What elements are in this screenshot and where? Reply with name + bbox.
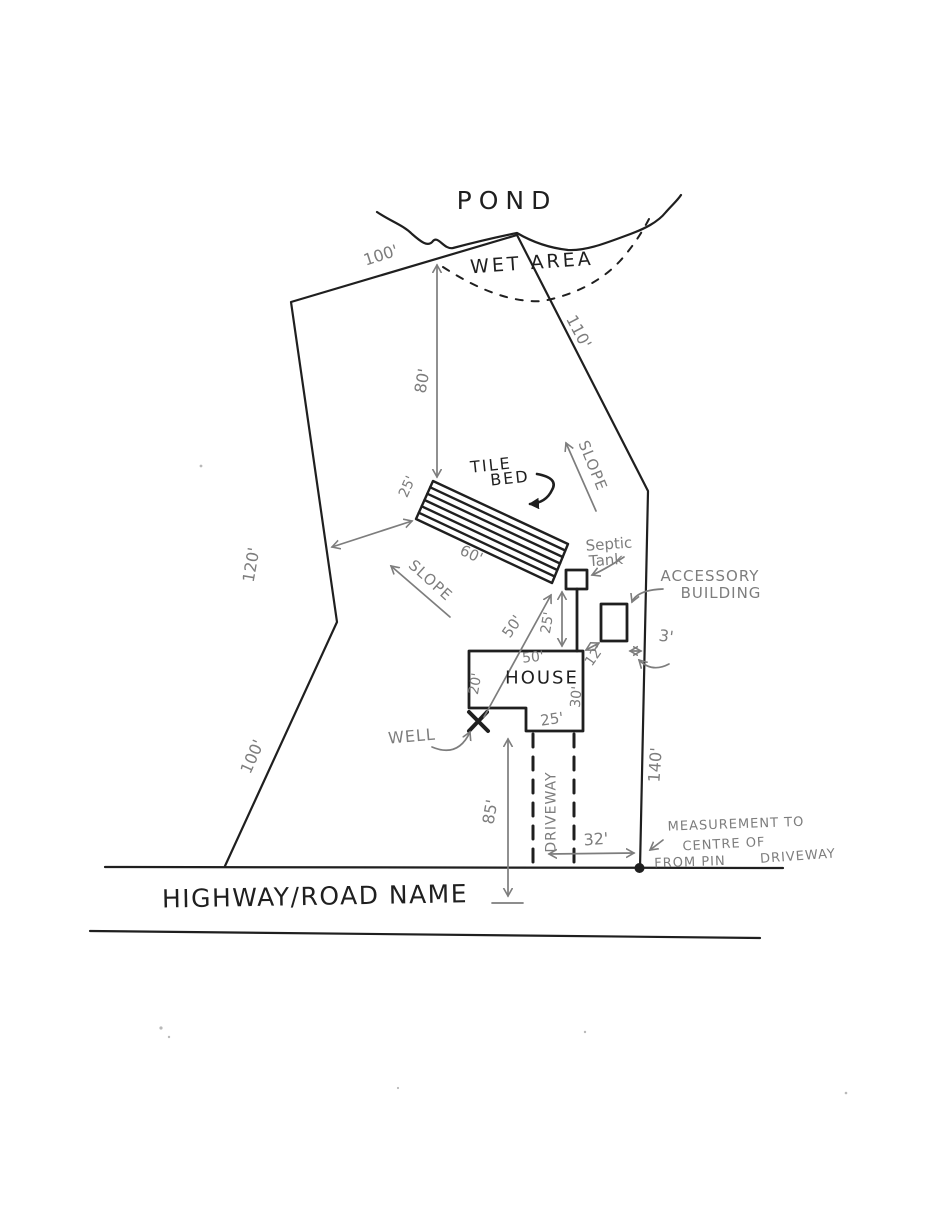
accessory-building-label-line2: BUILDING <box>681 586 762 602</box>
dim-3ft-label: 3' <box>658 628 675 647</box>
site-plan-drawing <box>0 0 950 1230</box>
highway-road-name-label: HIGHWAY/ROAD NAME <box>162 881 469 913</box>
dim-25ft-house-rear-label: 25' <box>539 711 564 730</box>
leader-well <box>432 732 470 750</box>
tile-bed <box>416 481 568 583</box>
pond-label: POND <box>457 188 558 214</box>
pin-note-line4: FROM PIN <box>654 855 726 871</box>
dim-line-tilebed-to-boundary <box>332 521 412 547</box>
leader-accessory-building <box>632 589 663 602</box>
survey-pin-dot <box>635 863 645 873</box>
dim-50ft-house-front-label: 50' <box>521 650 544 667</box>
leader-pin-note <box>650 840 663 850</box>
site-plan-page: POND WET AREA 100' 110' 120' 100' 140' 8… <box>0 0 950 1230</box>
dim-32ft-label: 32' <box>583 831 609 849</box>
accessory-building-box <box>601 604 627 641</box>
accessory-building-label-line1: ACCESSORY <box>661 569 760 585</box>
dim-line-32ft <box>549 853 634 854</box>
dim-140ft-label: 140' <box>646 747 665 783</box>
house-label: HOUSE <box>505 670 579 689</box>
tile-bed-pointer-arrow <box>530 474 554 504</box>
driveway-label: DRIVEWAY <box>545 771 560 852</box>
septic-tank-label-line2: Tank <box>588 552 623 570</box>
road-edge-bottom <box>90 931 760 938</box>
dim-30ft-label: 30' <box>569 686 586 709</box>
septic-tank-box <box>566 570 587 589</box>
